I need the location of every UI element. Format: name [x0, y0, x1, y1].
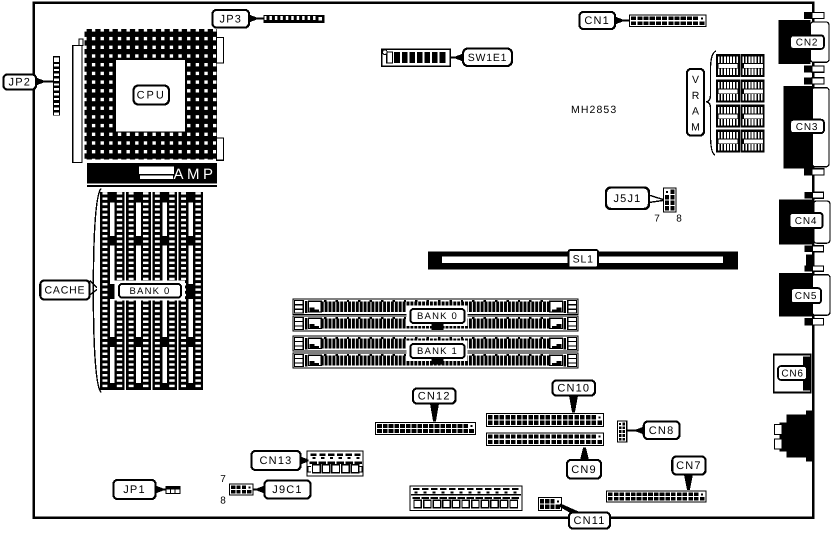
- svg-text:M: M: [691, 121, 700, 133]
- svg-text:BANK 1: BANK 1: [417, 346, 458, 357]
- svg-text:CN3: CN3: [796, 122, 818, 133]
- svg-text:CN7: CN7: [676, 460, 702, 472]
- svg-text:JP2: JP2: [9, 77, 32, 89]
- svg-text:SL1: SL1: [573, 253, 594, 265]
- svg-text:CN11: CN11: [573, 515, 605, 527]
- svg-text:J9C1: J9C1: [272, 484, 302, 496]
- svg-text:CN1: CN1: [584, 15, 610, 27]
- svg-text:R: R: [692, 90, 700, 102]
- svg-text:CN9: CN9: [571, 464, 597, 476]
- svg-text:JP1: JP1: [123, 484, 146, 496]
- svg-text:CN8: CN8: [649, 425, 675, 437]
- svg-text:V: V: [692, 74, 699, 86]
- svg-text:CN12: CN12: [418, 391, 451, 403]
- svg-text:J5J1: J5J1: [613, 193, 641, 205]
- svg-text:8: 8: [220, 496, 226, 507]
- svg-text:A: A: [692, 106, 699, 118]
- svg-text:7: 7: [220, 474, 226, 485]
- svg-text:JP3: JP3: [220, 14, 243, 26]
- svg-text:AMP: AMP: [173, 166, 216, 183]
- svg-text:BANK 0: BANK 0: [417, 311, 458, 322]
- svg-text:BANK 0: BANK 0: [130, 286, 171, 297]
- svg-text:MH2853: MH2853: [571, 104, 617, 116]
- svg-text:CACHE: CACHE: [45, 285, 86, 297]
- svg-text:CN2: CN2: [796, 38, 818, 49]
- svg-text:CN10: CN10: [557, 383, 590, 395]
- svg-text:SW1E1: SW1E1: [468, 52, 508, 64]
- svg-text:7: 7: [654, 214, 660, 225]
- svg-text:8: 8: [676, 214, 682, 225]
- svg-text:CN6: CN6: [781, 368, 803, 379]
- svg-text:CPU: CPU: [137, 90, 166, 102]
- svg-text:CN13: CN13: [260, 455, 293, 467]
- svg-text:CN4: CN4: [795, 216, 817, 227]
- svg-text:CN5: CN5: [795, 291, 817, 302]
